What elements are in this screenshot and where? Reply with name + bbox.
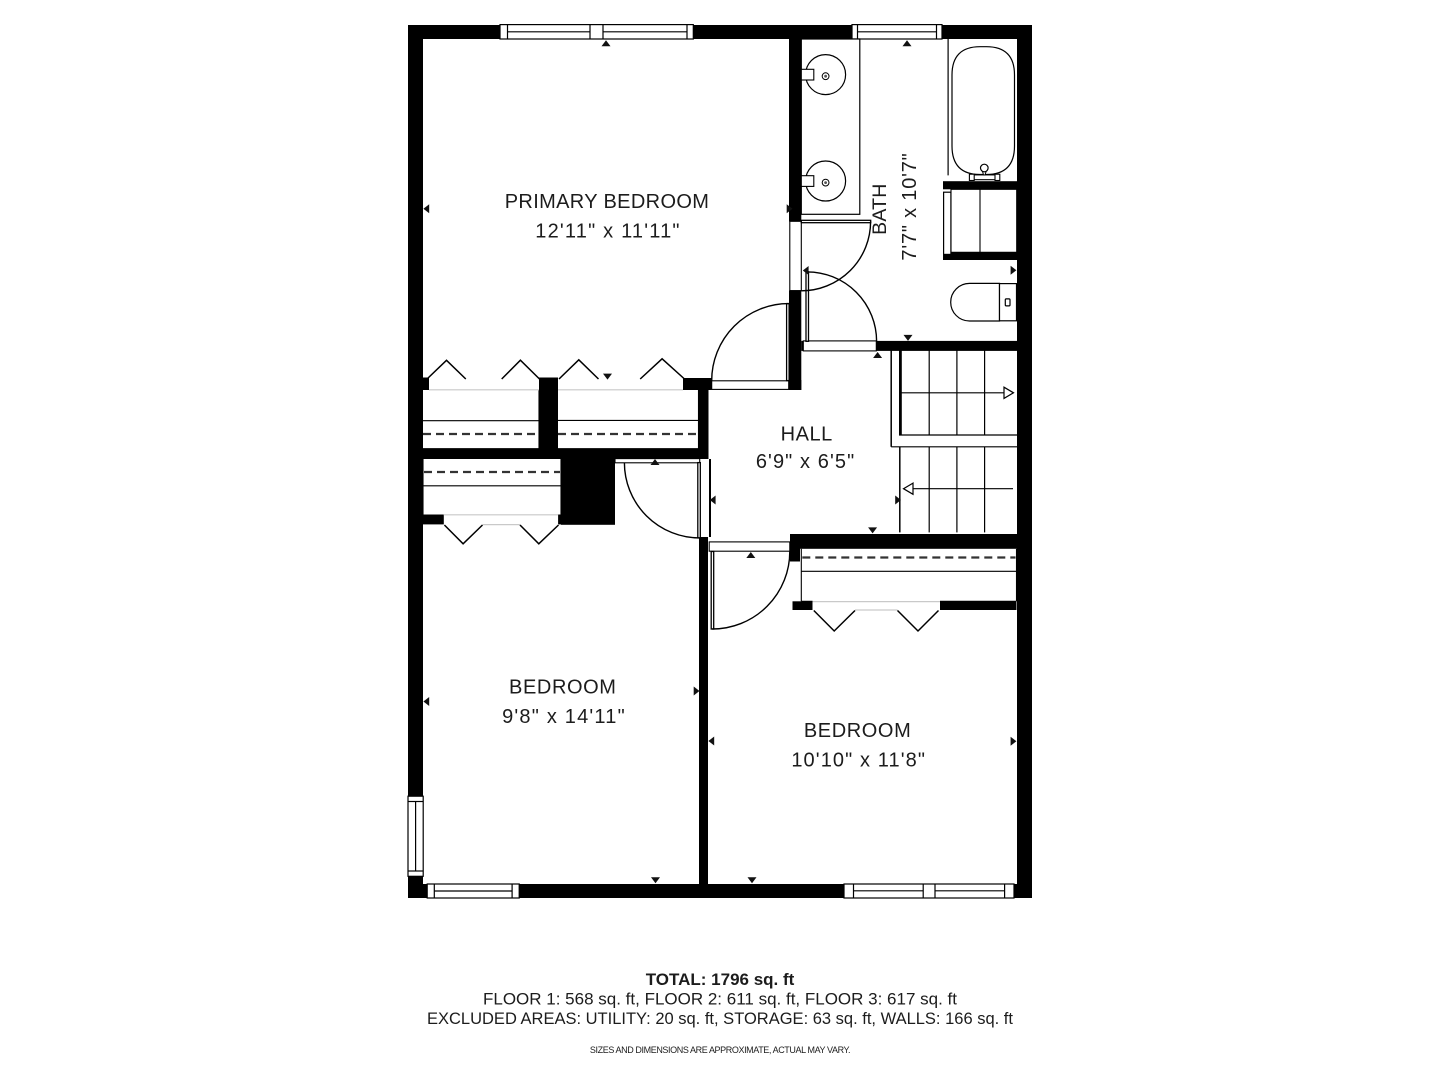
svg-text:TOTAL: 1796 sq. ft: TOTAL: 1796 sq. ft [646,970,795,989]
svg-text:9'8" x 14'11": 9'8" x 14'11" [502,706,626,728]
svg-text:FLOOR 1: 568 sq. ft, FLOOR 2:: FLOOR 1: 568 sq. ft, FLOOR 2: 611 sq. ft… [483,989,957,1008]
svg-text:BEDROOM: BEDROOM [509,676,617,698]
svg-text:SIZES AND DIMENSIONS ARE APPRO: SIZES AND DIMENSIONS ARE APPROXIMATE, AC… [590,1045,850,1055]
svg-text:BATH: BATH [869,184,891,235]
svg-text:PRIMARY BEDROOM: PRIMARY BEDROOM [505,191,710,213]
svg-text:HALL: HALL [781,424,833,446]
svg-text:BEDROOM: BEDROOM [804,720,912,742]
svg-text:7'7" x 10'7": 7'7" x 10'7" [899,152,921,260]
svg-text:12'11" x 11'11": 12'11" x 11'11" [535,220,680,242]
svg-text:10'10" x 11'8": 10'10" x 11'8" [791,750,926,772]
svg-text:EXCLUDED AREAS: UTILITY: 20 sq: EXCLUDED AREAS: UTILITY: 20 sq. ft, STOR… [427,1010,1013,1028]
svg-text:6'9" x 6'5": 6'9" x 6'5" [756,451,856,473]
